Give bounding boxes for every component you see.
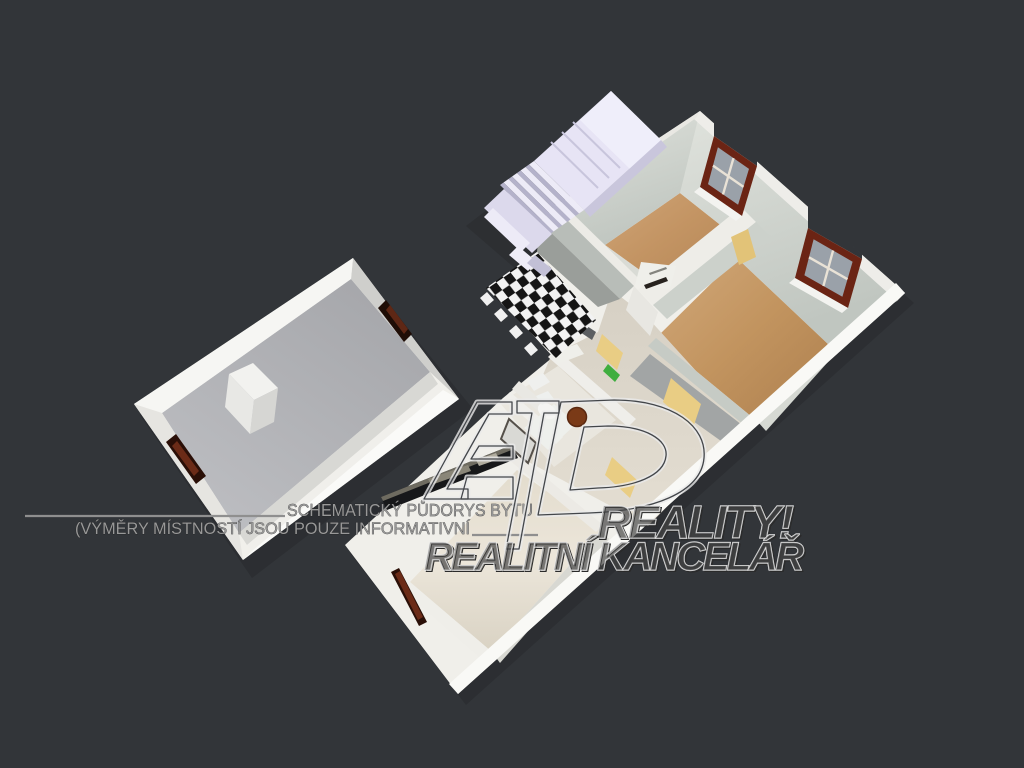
svg-text:REALITNÍ KANCELÁŘ: REALITNÍ KANCELÁŘ bbox=[424, 533, 804, 579]
svg-text:(VÝMĚRY MÍSTNOSTÍ JSOU POUZE I: (VÝMĚRY MÍSTNOSTÍ JSOU POUZE INFORMATIVN… bbox=[75, 519, 470, 538]
svg-text:SCHEMATICKÝ PŮDORYS BYTU: SCHEMATICKÝ PŮDORYS BYTU bbox=[287, 499, 533, 520]
